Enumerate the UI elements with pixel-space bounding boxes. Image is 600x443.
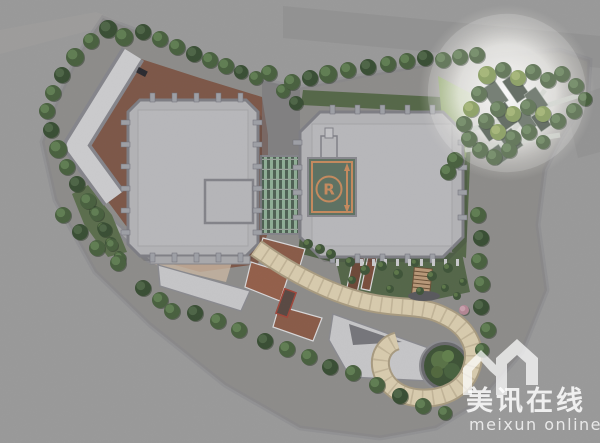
- pilaster: [253, 142, 262, 147]
- pilaster: [293, 215, 302, 220]
- shrub: [459, 278, 467, 286]
- watermark-text-en: meixun online: [469, 415, 600, 434]
- pilaster: [194, 253, 199, 262]
- pilaster: [253, 164, 262, 169]
- pilaster: [172, 253, 177, 262]
- pilaster: [216, 253, 221, 262]
- pilaster: [121, 120, 130, 125]
- pilaster: [330, 105, 335, 114]
- shrub: [303, 239, 313, 249]
- shrub: [443, 263, 453, 273]
- shrub: [416, 287, 424, 295]
- left-tower-terrace: [150, 256, 250, 264]
- shrub: [377, 261, 387, 271]
- site-plan-rendering: R: [0, 0, 600, 443]
- shrub: [345, 257, 355, 267]
- pilaster: [253, 186, 262, 191]
- pilaster: [253, 208, 262, 213]
- pilaster: [293, 190, 302, 195]
- pilaster: [253, 120, 262, 125]
- watermark-text-cn: 美讯在线: [466, 385, 586, 417]
- pilaster: [194, 93, 199, 102]
- pilaster: [293, 165, 302, 170]
- pilaster: [458, 215, 467, 220]
- pilaster: [293, 140, 302, 145]
- pilaster: [238, 253, 243, 262]
- shrub: [360, 265, 370, 275]
- column: [396, 259, 399, 266]
- pilaster: [355, 105, 360, 114]
- pilaster: [216, 93, 221, 102]
- shrub: [393, 269, 403, 279]
- column: [372, 259, 375, 266]
- shrub: [315, 244, 325, 254]
- column: [432, 259, 435, 266]
- column: [360, 259, 363, 266]
- pilaster: [238, 93, 243, 102]
- site-plan-canvas: R: [0, 0, 600, 443]
- column: [336, 259, 339, 266]
- pilaster: [121, 186, 130, 191]
- pilaster: [172, 93, 177, 102]
- shrub: [348, 276, 356, 284]
- helipad-letter: R: [323, 181, 335, 199]
- column: [420, 259, 423, 266]
- column: [408, 259, 411, 266]
- pilaster: [150, 253, 155, 262]
- pilaster: [380, 105, 385, 114]
- pilaster: [121, 164, 130, 169]
- pilaster: [150, 93, 155, 102]
- shrub: [386, 285, 394, 293]
- shrub: [441, 284, 449, 292]
- pilaster: [405, 105, 410, 114]
- left-tower: [128, 100, 258, 264]
- shrub: [453, 292, 461, 300]
- left-tower-roof-structure: [205, 180, 253, 223]
- helipad-shaft: [321, 136, 337, 160]
- pilaster: [121, 230, 130, 235]
- pilaster: [355, 254, 360, 263]
- entry-canopy: [408, 291, 440, 301]
- pilaster: [253, 230, 262, 235]
- pilaster: [121, 142, 130, 147]
- spotlight-wash: [428, 14, 586, 172]
- pilaster: [458, 190, 467, 195]
- pilaster: [121, 208, 130, 213]
- column: [456, 259, 459, 266]
- shrub: [411, 259, 419, 267]
- shrub: [427, 271, 437, 281]
- shrub: [326, 249, 336, 259]
